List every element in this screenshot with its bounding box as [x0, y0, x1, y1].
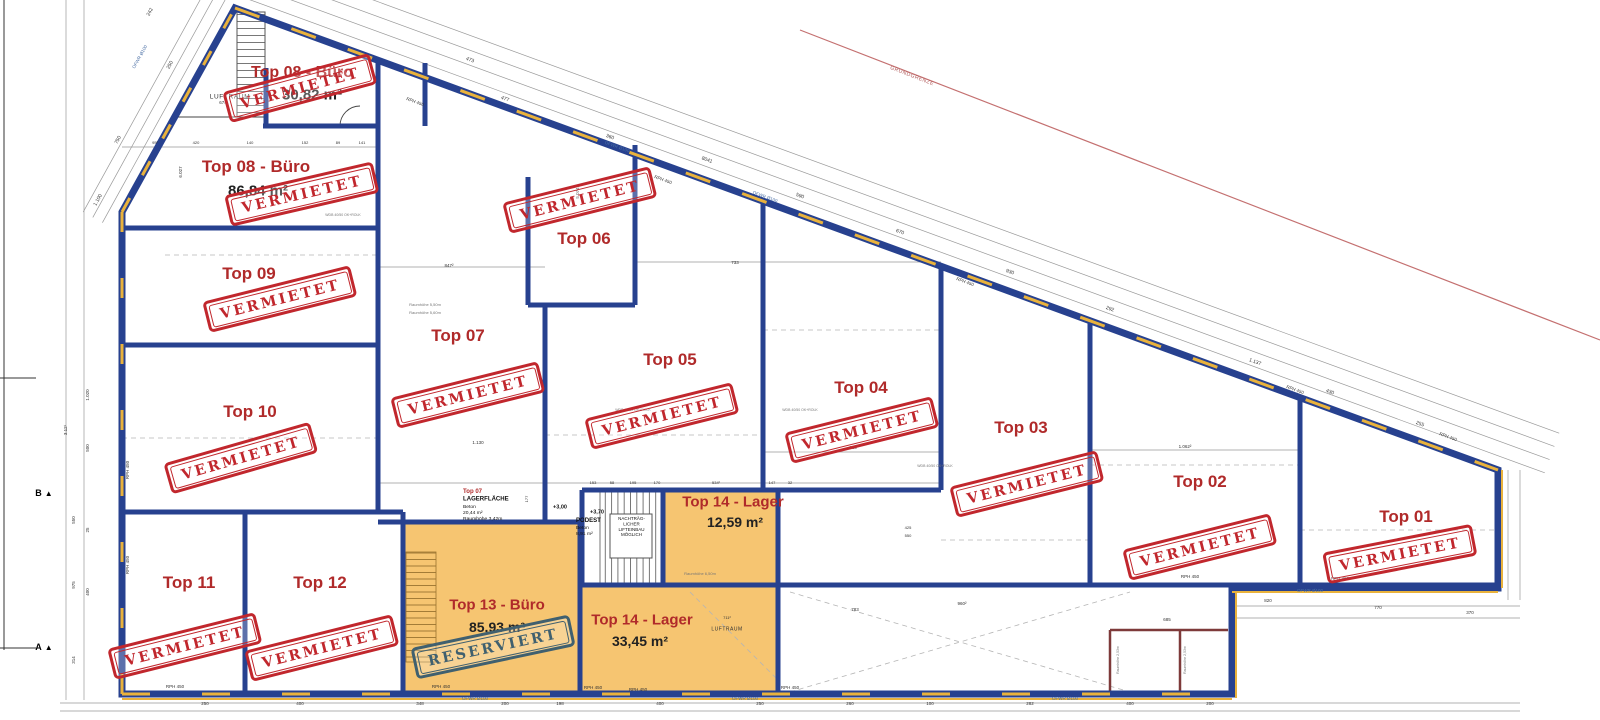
dimension-label: Raumhöhe 5,60m [409, 311, 441, 315]
dimension-label: RPH 450 [781, 686, 799, 691]
dimension-label: Raumhöhe 2,53m [1116, 646, 1120, 674]
unit-area-top14-upper: 12,59 m² [707, 514, 763, 530]
dimension-label: 400 [86, 588, 91, 596]
dimension-label: 420 [193, 141, 200, 145]
dimension-label: 425 [905, 526, 912, 530]
dimension-label: 400 [296, 702, 304, 707]
floorplan: Top 08 - Büro 30,82 m² Top 08 - Büro 86,… [0, 0, 1600, 720]
unit-label-top03: Top 03 [994, 418, 1048, 438]
dimension-label: RPH 450 [1181, 575, 1199, 580]
dimension-label: 550 [905, 534, 912, 538]
dimension-label: 770 [1374, 606, 1382, 611]
dimension-label: 820 [1264, 599, 1272, 604]
dimension-label: 153 [590, 481, 597, 485]
section-marker-b: B▲ [35, 488, 52, 498]
dimension-label: 58 [610, 481, 614, 485]
dimension-label: 141 [359, 141, 366, 145]
dimension-label: 685 [1163, 618, 1171, 623]
interior-walls [122, 60, 1498, 694]
dimension-label: 198 [556, 702, 564, 707]
storage-area-note: Top 07 LAGERFLÄCHE Beton 20,44 m² Raumhö… [463, 488, 509, 522]
luftraum-label-right: LUFTRAUM [711, 626, 742, 632]
dimension-label: 32 [788, 481, 792, 485]
dimension-label: OFWR Ø100 [1297, 589, 1323, 594]
section-triangle-icon: ▲ [45, 643, 53, 652]
dimension-label: 847² [444, 264, 453, 269]
dimension-label: 711² [723, 616, 731, 620]
dimension-label: 400 [1126, 702, 1134, 707]
dimension-label: 534² [712, 481, 720, 485]
lift-note: NACHTRÄG-LICHERLIFTEINBAUMÖGLICH [612, 516, 651, 538]
dimension-label: 400 [656, 702, 664, 707]
unit-area-top14-lower: 33,45 m² [612, 633, 668, 649]
dimension-label: OFWR Ø100 [1052, 697, 1078, 702]
dimension-label: 200 [1206, 702, 1214, 707]
dimension-label: OFWR Ø100 [732, 697, 758, 702]
dimension-label: WDB 40/50 OK+ROLK [325, 213, 361, 217]
dimension-label: 282 [1026, 702, 1034, 707]
dimension-label: 960² [957, 602, 966, 607]
dimension-label: Raumhöhe 5,50m [409, 303, 441, 307]
dimension-label: 100 [926, 702, 934, 707]
dimension-label: RPH 450 [166, 685, 184, 690]
level-marker-370: +3,70 [590, 509, 604, 515]
unit-label-top13: Top 13 - Büro [449, 597, 545, 614]
unit-label-top05: Top 05 [643, 350, 697, 370]
dashed-reference-lines [122, 255, 1498, 692]
dimension-label: 95² [152, 141, 158, 145]
window-accents [122, 8, 1502, 699]
section-marker-a: A▲ [35, 642, 52, 652]
dimension-label: 140 [247, 141, 254, 145]
dimension-label: 250 [201, 702, 209, 707]
unit-label-top07: Top 07 [431, 326, 485, 346]
dimension-label: 147 [769, 481, 776, 485]
dimension-label: RPH 450 [126, 556, 131, 574]
section-triangle-icon: ▲ [45, 489, 53, 498]
unit-label-top14-lower: Top 14 - Lager [591, 612, 692, 629]
dimension-label: OFWR Ø100 [462, 697, 488, 702]
dimension-label: 6.027 [179, 166, 184, 177]
dimension-label: 195 [630, 481, 637, 485]
storage-unit-ref: Top 07 [463, 488, 509, 496]
dimension-label: 348 [416, 702, 424, 707]
dimension-label: 152 [302, 141, 309, 145]
dimension-label: RPH 450 [432, 685, 450, 690]
dimension-label: 89 [336, 141, 340, 145]
unit-label-top09: Top 09 [222, 264, 276, 284]
dimension-label: RPH 450 [629, 688, 647, 693]
dimension-label: 733 [731, 261, 739, 266]
podest-title: PODEST [576, 517, 601, 525]
dimension-label: 1.130 [472, 441, 483, 446]
dimension-label: 550 [72, 516, 77, 524]
dimension-label: 3.12¹ [64, 425, 69, 435]
unit-label-top02: Top 02 [1173, 472, 1227, 492]
dimension-label: Raumhöhe 2,53m [1183, 646, 1187, 674]
unit-label-top08-lower: Top 08 - Büro [202, 157, 310, 177]
dimension-label: RPH 450 [126, 461, 131, 479]
dimension-label: 177 [525, 496, 529, 503]
unit-label-top12: Top 12 [293, 573, 347, 593]
dimension-label: 260 [846, 702, 854, 707]
podest-area-value: 8,91 m² [576, 531, 601, 537]
storage-room-height: Raumhöhe 3,42m [463, 516, 509, 522]
dimension-label: 200 [501, 702, 509, 707]
dimension-label: 783 [851, 608, 859, 613]
dimension-label: RPH 450 [584, 686, 602, 691]
dimension-label: 1.062² [1179, 445, 1192, 450]
dimension-label: 975 [72, 581, 77, 589]
sheet-edge-lines [0, 0, 36, 650]
dimension-label: 25 [86, 527, 91, 532]
storage-title: LAGERFLÄCHE [463, 496, 509, 504]
dimension-label: 170 [654, 481, 661, 485]
dimension-label: WDB 40/50 OK+ROLK [782, 408, 818, 412]
unit-label-top04: Top 04 [834, 378, 888, 398]
unit-label-top01: Top 01 [1379, 507, 1433, 527]
unit-label-top14-upper: Top 14 - Lager [682, 494, 783, 511]
unit-label-top06: Top 06 [557, 229, 611, 249]
dimension-label: 370 [1466, 611, 1474, 616]
level-marker-300: +3,00 [553, 504, 567, 510]
dimension-label: 314 [72, 656, 77, 664]
dimension-label: Raumhöhe 6,50m [684, 572, 716, 576]
dimension-label: 1.020 [86, 389, 91, 400]
small-room-partitions [1110, 630, 1228, 694]
unit-label-top10: Top 10 [223, 402, 277, 422]
dimension-label: 500 [86, 444, 91, 452]
dimension-label: WDB 40/50 OK+ROLK [917, 464, 953, 468]
dimension-label: 250 [756, 702, 764, 707]
podest-note: PODEST Beton 8,91 m² [576, 517, 601, 537]
unit-label-top11: Top 11 [163, 573, 216, 593]
